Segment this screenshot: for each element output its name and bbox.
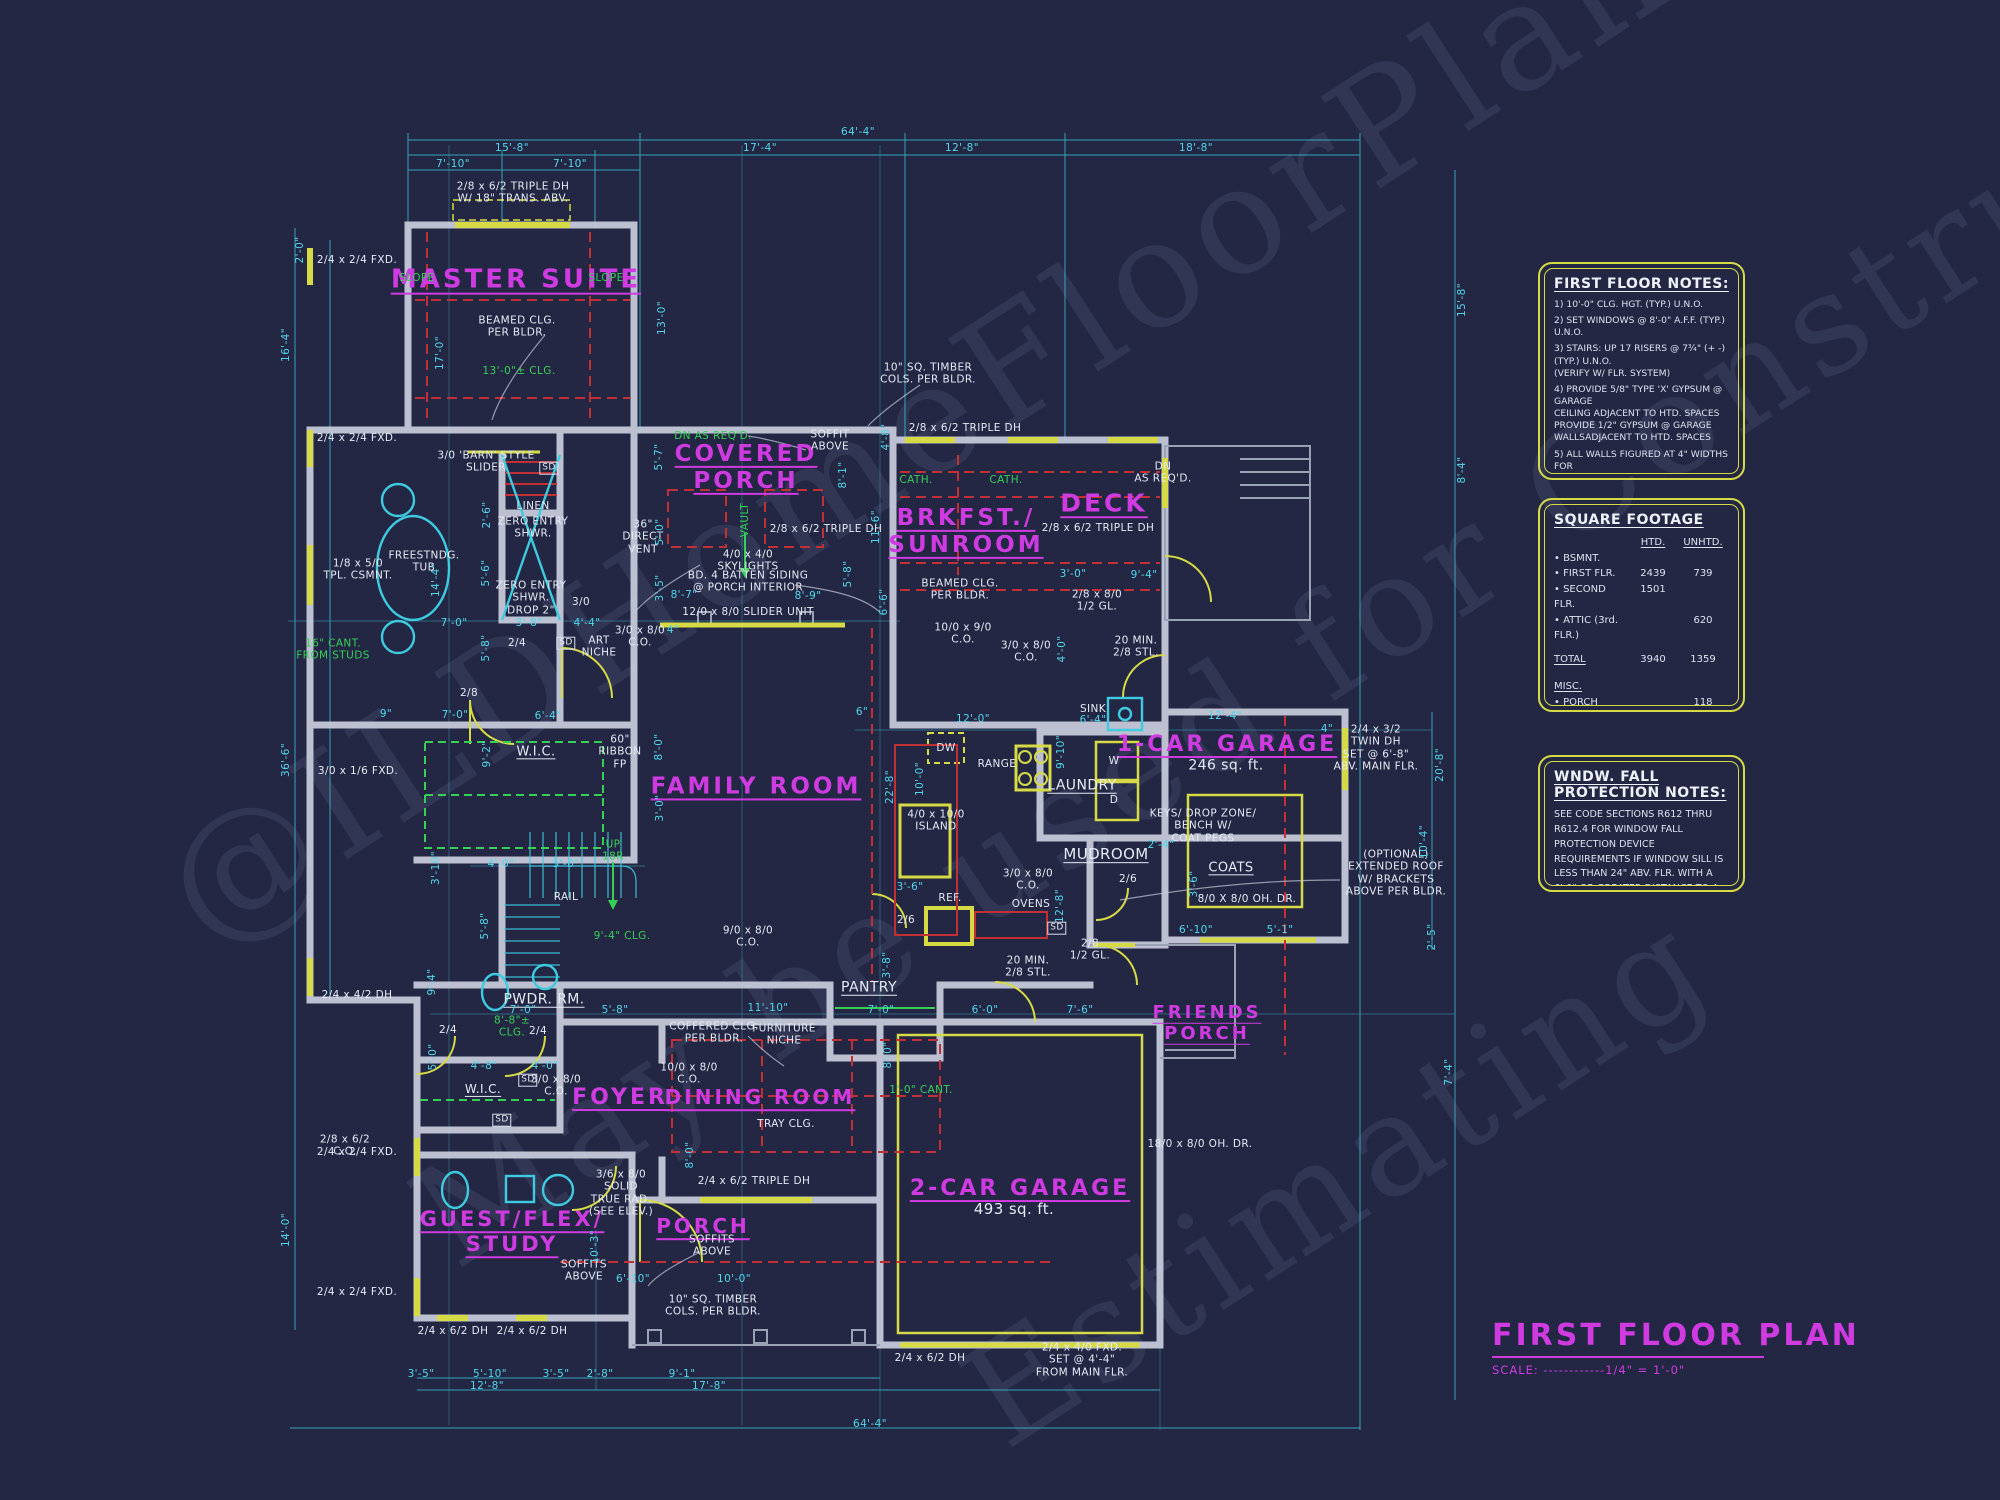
square-footage-box: SQUARE FOOTAGE HTD. UNHTD. • BSMNT.• FIR… [1538,498,1745,712]
first-floor-notes-inner: FIRST FLOOR NOTES: 1) 10'-0" CLG. HGT. (… [1544,268,1739,474]
square-footage-cell: • SECOND FLR. [1554,582,1629,613]
fall-protection-inner: WNDW. FALL PROTECTION NOTES: SEE CODE SE… [1544,761,1739,886]
square-footage-cell: TOTAL [1554,652,1629,668]
closet-shelving [420,533,935,1100]
square-footage-cell: 118 [1677,695,1729,707]
square-footage-cell [1677,551,1729,567]
square-footage-cell: • ATTIC (3rd. FLR.) [1554,613,1629,644]
square-footage-inner: SQUARE FOOTAGE HTD. UNHTD. • BSMNT.• FIR… [1544,504,1739,706]
square-footage-row: • SECOND FLR.1501 [1554,582,1729,613]
fall-protection-title: WNDW. FALL PROTECTION NOTES: [1554,769,1729,801]
misc-label: MISC. [1554,679,1729,695]
first-floor-notes-box: FIRST FLOOR NOTES: 1) 10'-0" CLG. HGT. (… [1538,262,1745,480]
square-footage-cell: 3940 [1629,652,1677,668]
note-item: 4) PROVIDE 5/8" TYPE 'X' GYPSUM @ GARAGE… [1554,384,1729,445]
porch-deck-outlines [632,446,1310,1345]
square-footage-cell: • FIRST FLR. [1554,566,1629,582]
square-footage-cell [1629,613,1677,644]
note-item: 3) STAIRS: UP 17 RISERS @ 7¾" (+ -) (TYP… [1554,343,1729,379]
fall-protection-body: SEE CODE SECTIONS R612 THRU R612.4 FOR W… [1554,808,1729,886]
square-footage-title: SQUARE FOOTAGE [1554,512,1729,528]
windows-and-doors [310,200,1345,1345]
square-footage-row: • BSMNT. [1554,551,1729,567]
square-footage-cell: 620 [1677,613,1729,644]
square-footage-row: TOTAL39401359 [1554,652,1729,668]
square-footage-cell: • BSMNT. [1554,551,1629,567]
htd-column-header: HTD. [1629,535,1677,551]
square-footage-cell: 739 [1677,566,1729,582]
square-footage-cell [1677,582,1729,613]
note-item: 1) 10'-0" CLG. HGT. (TYP.) U.N.O. [1554,299,1729,311]
square-footage-row: • PORCH118 [1554,695,1729,707]
drawing-scale: SCALE: ------------1/4" = 1'-0" [1492,1363,1764,1377]
stairs [504,832,636,977]
note-item: 5) ALL WALLS FIGURED AT 4" WIDTHS FOR FO… [1554,449,1729,474]
square-footage-row: • FIRST FLR.2439739 [1554,566,1729,582]
unhtd-column-header: UNHTD. [1677,535,1729,551]
ceiling-treatments [415,232,1285,1262]
square-footage-row: • ATTIC (3rd. FLR.)620 [1554,613,1729,644]
note-item: 2) SET WINDOWS @ 8'-0" A.F.F. (TYP.) U.N… [1554,315,1729,339]
drawing-title: FIRST FLOOR PLAN [1492,1318,1764,1358]
square-footage-header: HTD. UNHTD. [1554,535,1729,551]
first-floor-notes-title: FIRST FLOOR NOTES: [1554,276,1729,292]
square-footage-cell: 2439 [1629,566,1677,582]
square-footage-cell [1629,695,1677,707]
blueprint-canvas: @ILDHomeFloorPlans.com May be used for C… [0,0,2000,1500]
leader-lines [492,335,1340,1286]
square-footage-cell: 1359 [1677,652,1729,668]
square-footage-cell: 1501 [1629,582,1677,613]
square-footage-rows: • BSMNT.• FIRST FLR.2439739• SECOND FLR.… [1554,551,1729,707]
fall-protection-box: WNDW. FALL PROTECTION NOTES: SEE CODE SE… [1538,755,1745,892]
square-footage-cell [1629,551,1677,567]
square-footage-cell: • PORCH [1554,695,1629,707]
first-floor-notes-list: 1) 10'-0" CLG. HGT. (TYP.) U.N.O.2) SET … [1554,299,1729,474]
drawing-title-block: FIRST FLOOR PLAN SCALE: ------------1/4"… [1492,1318,1764,1377]
floor-plan-drawing [0,0,2000,1500]
